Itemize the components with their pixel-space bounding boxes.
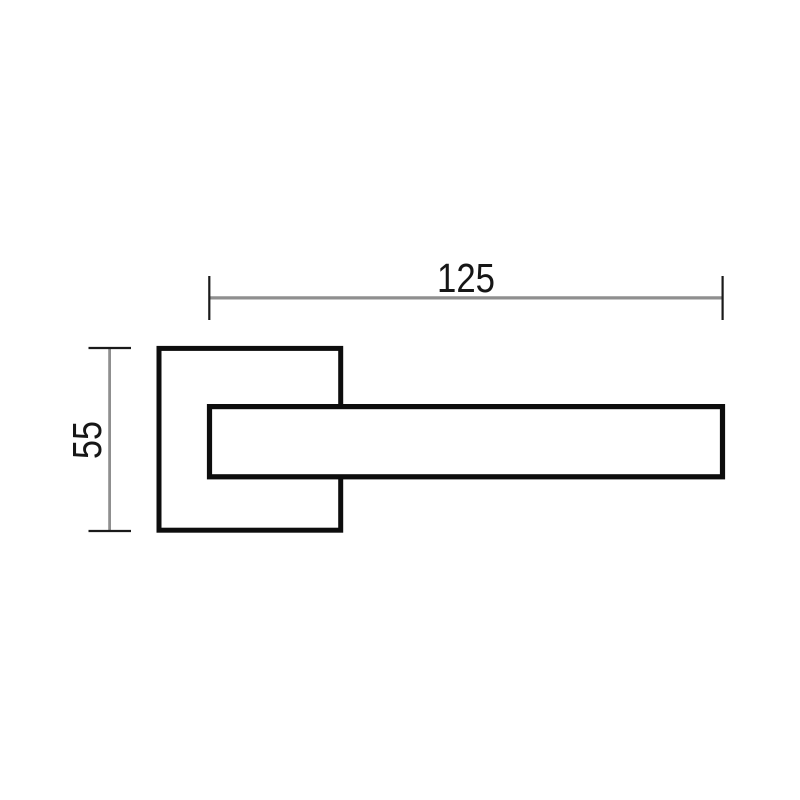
svg-text:55: 55: [64, 421, 110, 459]
svg-text:125: 125: [437, 255, 495, 301]
